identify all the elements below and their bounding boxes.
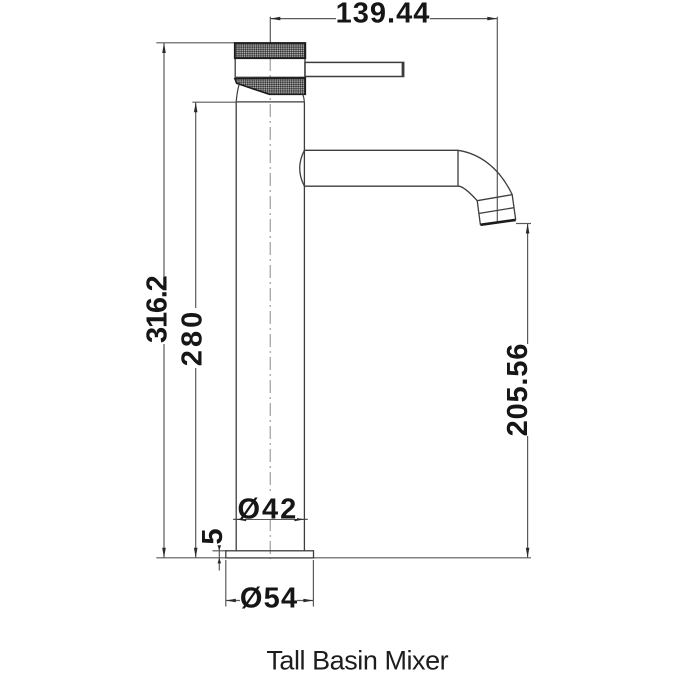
svg-text:5: 5 <box>197 528 229 544</box>
svg-text:280: 280 <box>177 309 209 366</box>
svg-text:Ø42: Ø42 <box>237 494 298 526</box>
svg-text:316.2: 316.2 <box>142 276 174 343</box>
svg-text:Ø54: Ø54 <box>240 583 298 615</box>
svg-text:139.44: 139.44 <box>336 0 431 30</box>
svg-text:205.56: 205.56 <box>502 343 534 437</box>
svg-text:Tall Basin Mixer: Tall Basin Mixer <box>266 646 448 675</box>
